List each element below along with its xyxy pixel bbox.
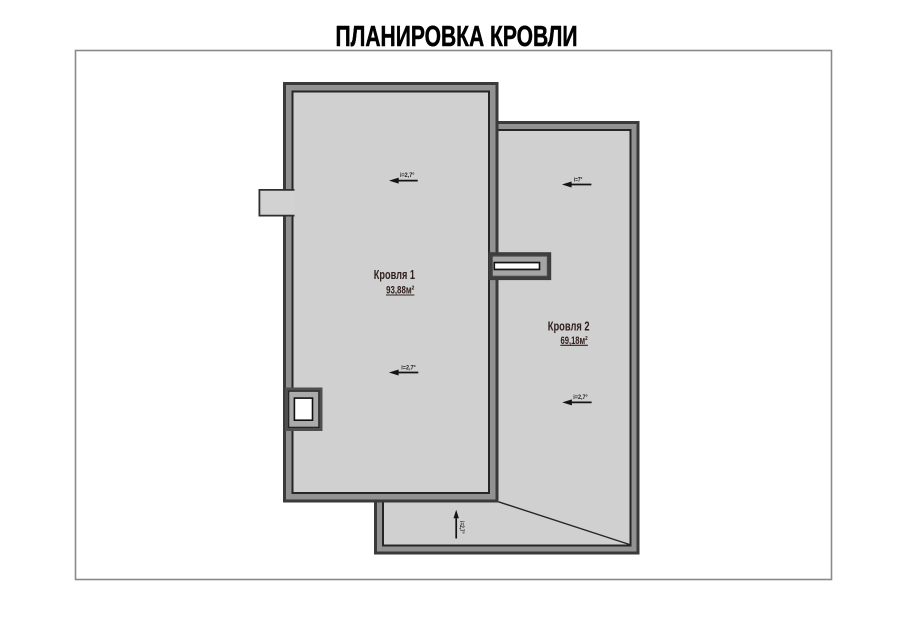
svg-text:i=7°: i=7° [574,176,583,183]
svg-text:i=2,7°: i=2,7° [400,172,415,179]
svg-text:i=2,7°: i=2,7° [573,394,588,401]
svg-text:Кровля 1: Кровля 1 [374,268,415,282]
svg-text:i=2,7°: i=2,7° [401,364,416,371]
svg-text:Кровля 2: Кровля 2 [548,319,590,333]
svg-text:ПЛАНИРОВКА КРОВЛИ: ПЛАНИРОВКА КРОВЛИ [336,21,578,53]
svg-text:i=2,7°: i=2,7° [458,521,465,534]
